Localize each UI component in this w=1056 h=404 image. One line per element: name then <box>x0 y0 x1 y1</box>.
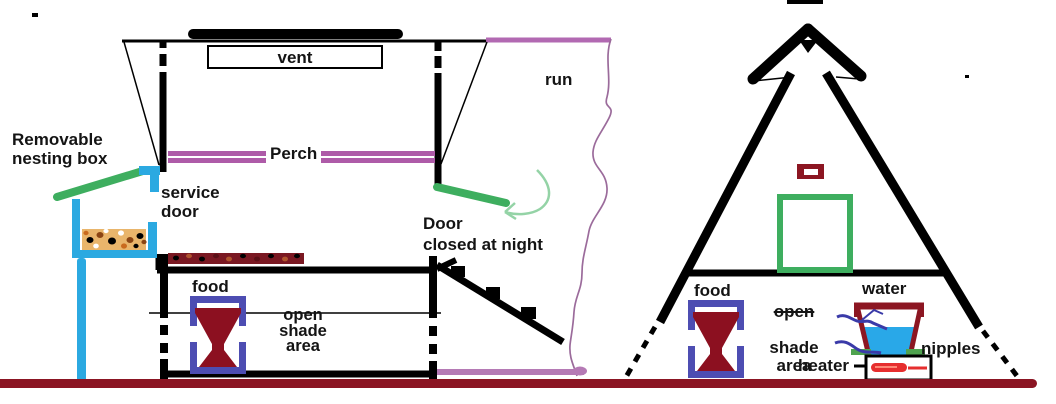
food-feeder-left <box>190 296 246 374</box>
floor-litter <box>168 253 304 264</box>
water-label: water <box>862 279 906 298</box>
apex-cap-right <box>808 29 861 76</box>
apex-triangle <box>799 40 818 53</box>
food-label-left: food <box>192 277 229 296</box>
nipples-label: nipples <box>921 339 981 358</box>
service-door-lid <box>139 166 160 175</box>
nesting-box-label: Removable nesting box <box>12 130 142 168</box>
service-door-label: service door <box>161 183 241 221</box>
apex-cap-left <box>753 29 808 79</box>
pop-door <box>437 187 506 203</box>
left-leg-buried-dashes <box>626 327 655 377</box>
nesting-box-post <box>77 258 86 382</box>
roof-brace-right <box>441 42 487 164</box>
stray-mark <box>965 75 969 78</box>
run-wavy-fence-line <box>570 39 611 376</box>
run-label: run <box>545 70 572 89</box>
pop-door-label: Door closed at night <box>423 213 568 255</box>
food-label-right: food <box>694 281 731 300</box>
nesting-material <box>82 229 147 250</box>
diagram-drawing <box>0 0 1056 404</box>
vent-label: vent <box>208 47 382 68</box>
ramp <box>437 260 563 342</box>
ground-line <box>0 379 1037 388</box>
door-swing-arrow <box>505 170 549 219</box>
run-rail-end-blob <box>573 367 587 376</box>
nesting-box-assembly <box>57 166 160 382</box>
stray-mark <box>32 13 38 17</box>
a-frame-vent-slot <box>804 169 818 175</box>
coop-diagram: Removable nesting box vent Perch service… <box>0 0 1056 404</box>
open-word-strikethrough: open <box>774 302 815 321</box>
apex-top-bar <box>787 0 823 4</box>
waterer-assembly <box>835 306 931 380</box>
perch-label: Perch <box>266 144 321 163</box>
food-feeder-right <box>688 300 744 378</box>
nesting-box-roof <box>57 170 146 197</box>
shade-area-label-left: open shade area <box>257 308 349 355</box>
right-leg-buried-dashes <box>983 331 1017 376</box>
green-window-frame <box>780 197 850 270</box>
nesting-box-frame <box>72 166 160 382</box>
heater-label: heater <box>798 356 849 375</box>
